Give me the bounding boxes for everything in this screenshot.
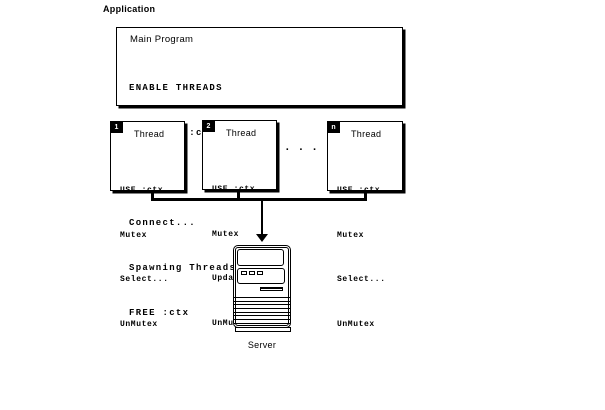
arrow-shaft [261,200,264,235]
diagram-canvas: Application Main Program ENABLE THREADS … [0,0,605,410]
server-button [249,271,255,275]
server-vent-line [234,312,290,313]
thread-label: Thread [134,129,164,139]
server-vent-line [234,304,290,305]
server-button [241,271,247,275]
application-label: Application [103,4,155,14]
code-line: USE :ctx [212,186,270,195]
thread-code: USE :ctx Mutex Select... UnMutex [120,151,178,365]
thread-label: Thread [226,128,256,138]
thread-number-badge: 2 [203,121,215,132]
server-base [235,327,291,332]
code-line: UnMutex [337,321,395,330]
server-drive-slot [260,287,283,291]
thread-number-badge: 1 [111,122,123,133]
thread-box-2: 2 Thread USE :ctx Mutex Update... UnMute… [202,120,277,190]
server-label: Server [233,340,291,350]
server-vent-line [234,301,290,302]
thread-box-n: n Thread USE :ctx Mutex Select... UnMute… [327,121,403,191]
main-program-box: Main Program ENABLE THREADS ALLOCATE :ct… [116,27,403,106]
code-line: ENABLE THREADS [129,84,256,93]
main-program-title: Main Program [130,34,193,45]
thread-number-badge: n [328,122,340,133]
thread-code: USE :ctx Mutex Select... UnMutex [337,151,395,365]
thread-box-1: 1 Thread USE :ctx Mutex Select... UnMute… [110,121,185,191]
ellipsis-icon: ... [284,143,325,154]
code-line: UnMutex [120,321,178,330]
code-line: Select... [120,276,178,285]
server-top-panel [237,249,284,266]
thread-label: Thread [351,129,381,139]
server-vent-line [234,297,290,298]
code-line: Mutex [337,232,395,241]
connector-bus-line [151,198,368,201]
server-button [257,271,263,275]
server-vent-line [234,315,290,316]
server-button-panel [237,268,285,284]
arrow-down-icon [256,234,268,242]
code-line: USE :ctx [120,187,178,196]
server-vent-line [234,323,290,324]
code-line: Select... [337,276,395,285]
server-icon [233,245,291,333]
server-vent-line [234,308,290,309]
code-line: Mutex [120,232,178,241]
server-vent-line [234,319,290,320]
